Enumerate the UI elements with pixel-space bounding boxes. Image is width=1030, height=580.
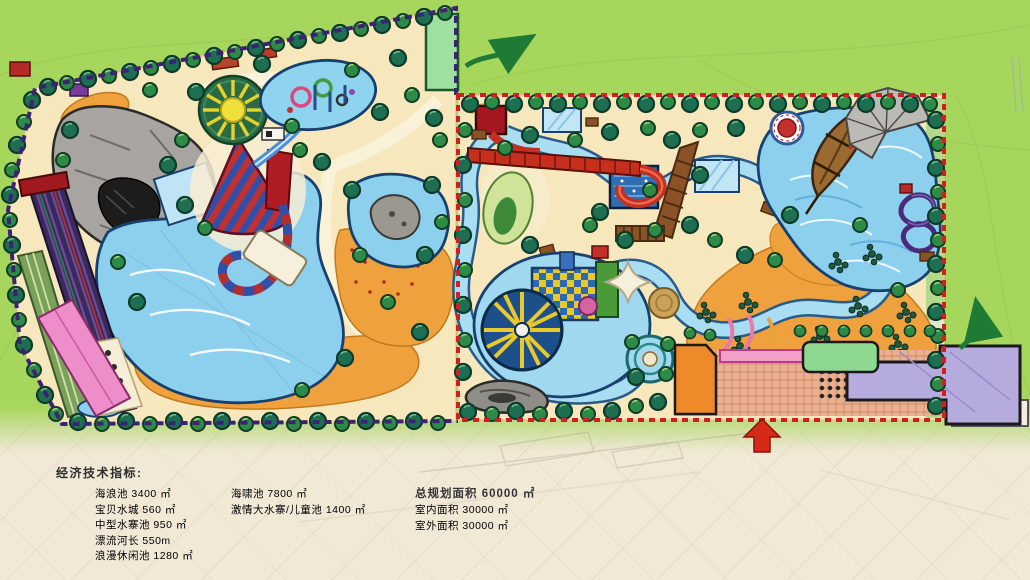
green-entrance-building (803, 342, 878, 372)
green-building (426, 14, 458, 90)
pink-canopy-strip (720, 350, 808, 362)
legend-item: 海浪池 3400 ㎡ (95, 487, 193, 503)
legend-column-pools: 海浪池 3400 ㎡ 宝贝水城 560 ㎡ 中型水寨池 950 ㎡ 漂流河长 5… (95, 487, 193, 565)
orange-building (675, 345, 716, 414)
legend-item: 激情大水寨/儿童池 1400 ㎡ (231, 503, 366, 519)
legend-item: 室外面积 30000 ㎡ (415, 519, 535, 535)
legend-title: 经济技术指标: (56, 464, 143, 481)
legend-item: 中型水寨池 950 ㎡ (95, 518, 193, 534)
spiral-river-feature (625, 335, 675, 385)
legend-total-area: 总规划面积 60000 ㎡ (415, 485, 535, 503)
legend-item: 浪漫休闲池 1280 ㎡ (95, 549, 193, 565)
legend-item: 室内面积 30000 ㎡ (415, 503, 535, 519)
entrance-buildings (675, 342, 1028, 426)
legend-item: 海啸池 7800 ㎡ (231, 487, 366, 503)
legend-column-pools-2: 海啸池 7800 ㎡ 激情大水寨/儿童池 1400 ㎡ (231, 487, 366, 518)
whirlpool-feature (771, 112, 803, 144)
indoor-park-zone (455, 88, 1028, 426)
legend-column-areas: 总规划面积 60000 ㎡ 室内面积 30000 ㎡ 室外面积 30000 ㎡ (415, 485, 535, 534)
legend-item: 漂流河长 550m (95, 534, 193, 550)
round-plaza (649, 288, 679, 318)
legend-item: 宝贝水城 560 ㎡ (95, 503, 193, 519)
water-park-master-plan: 经济技术指标: 海浪池 3400 ㎡ 宝贝水城 560 ㎡ 中型水寨池 950 … (0, 0, 1030, 580)
